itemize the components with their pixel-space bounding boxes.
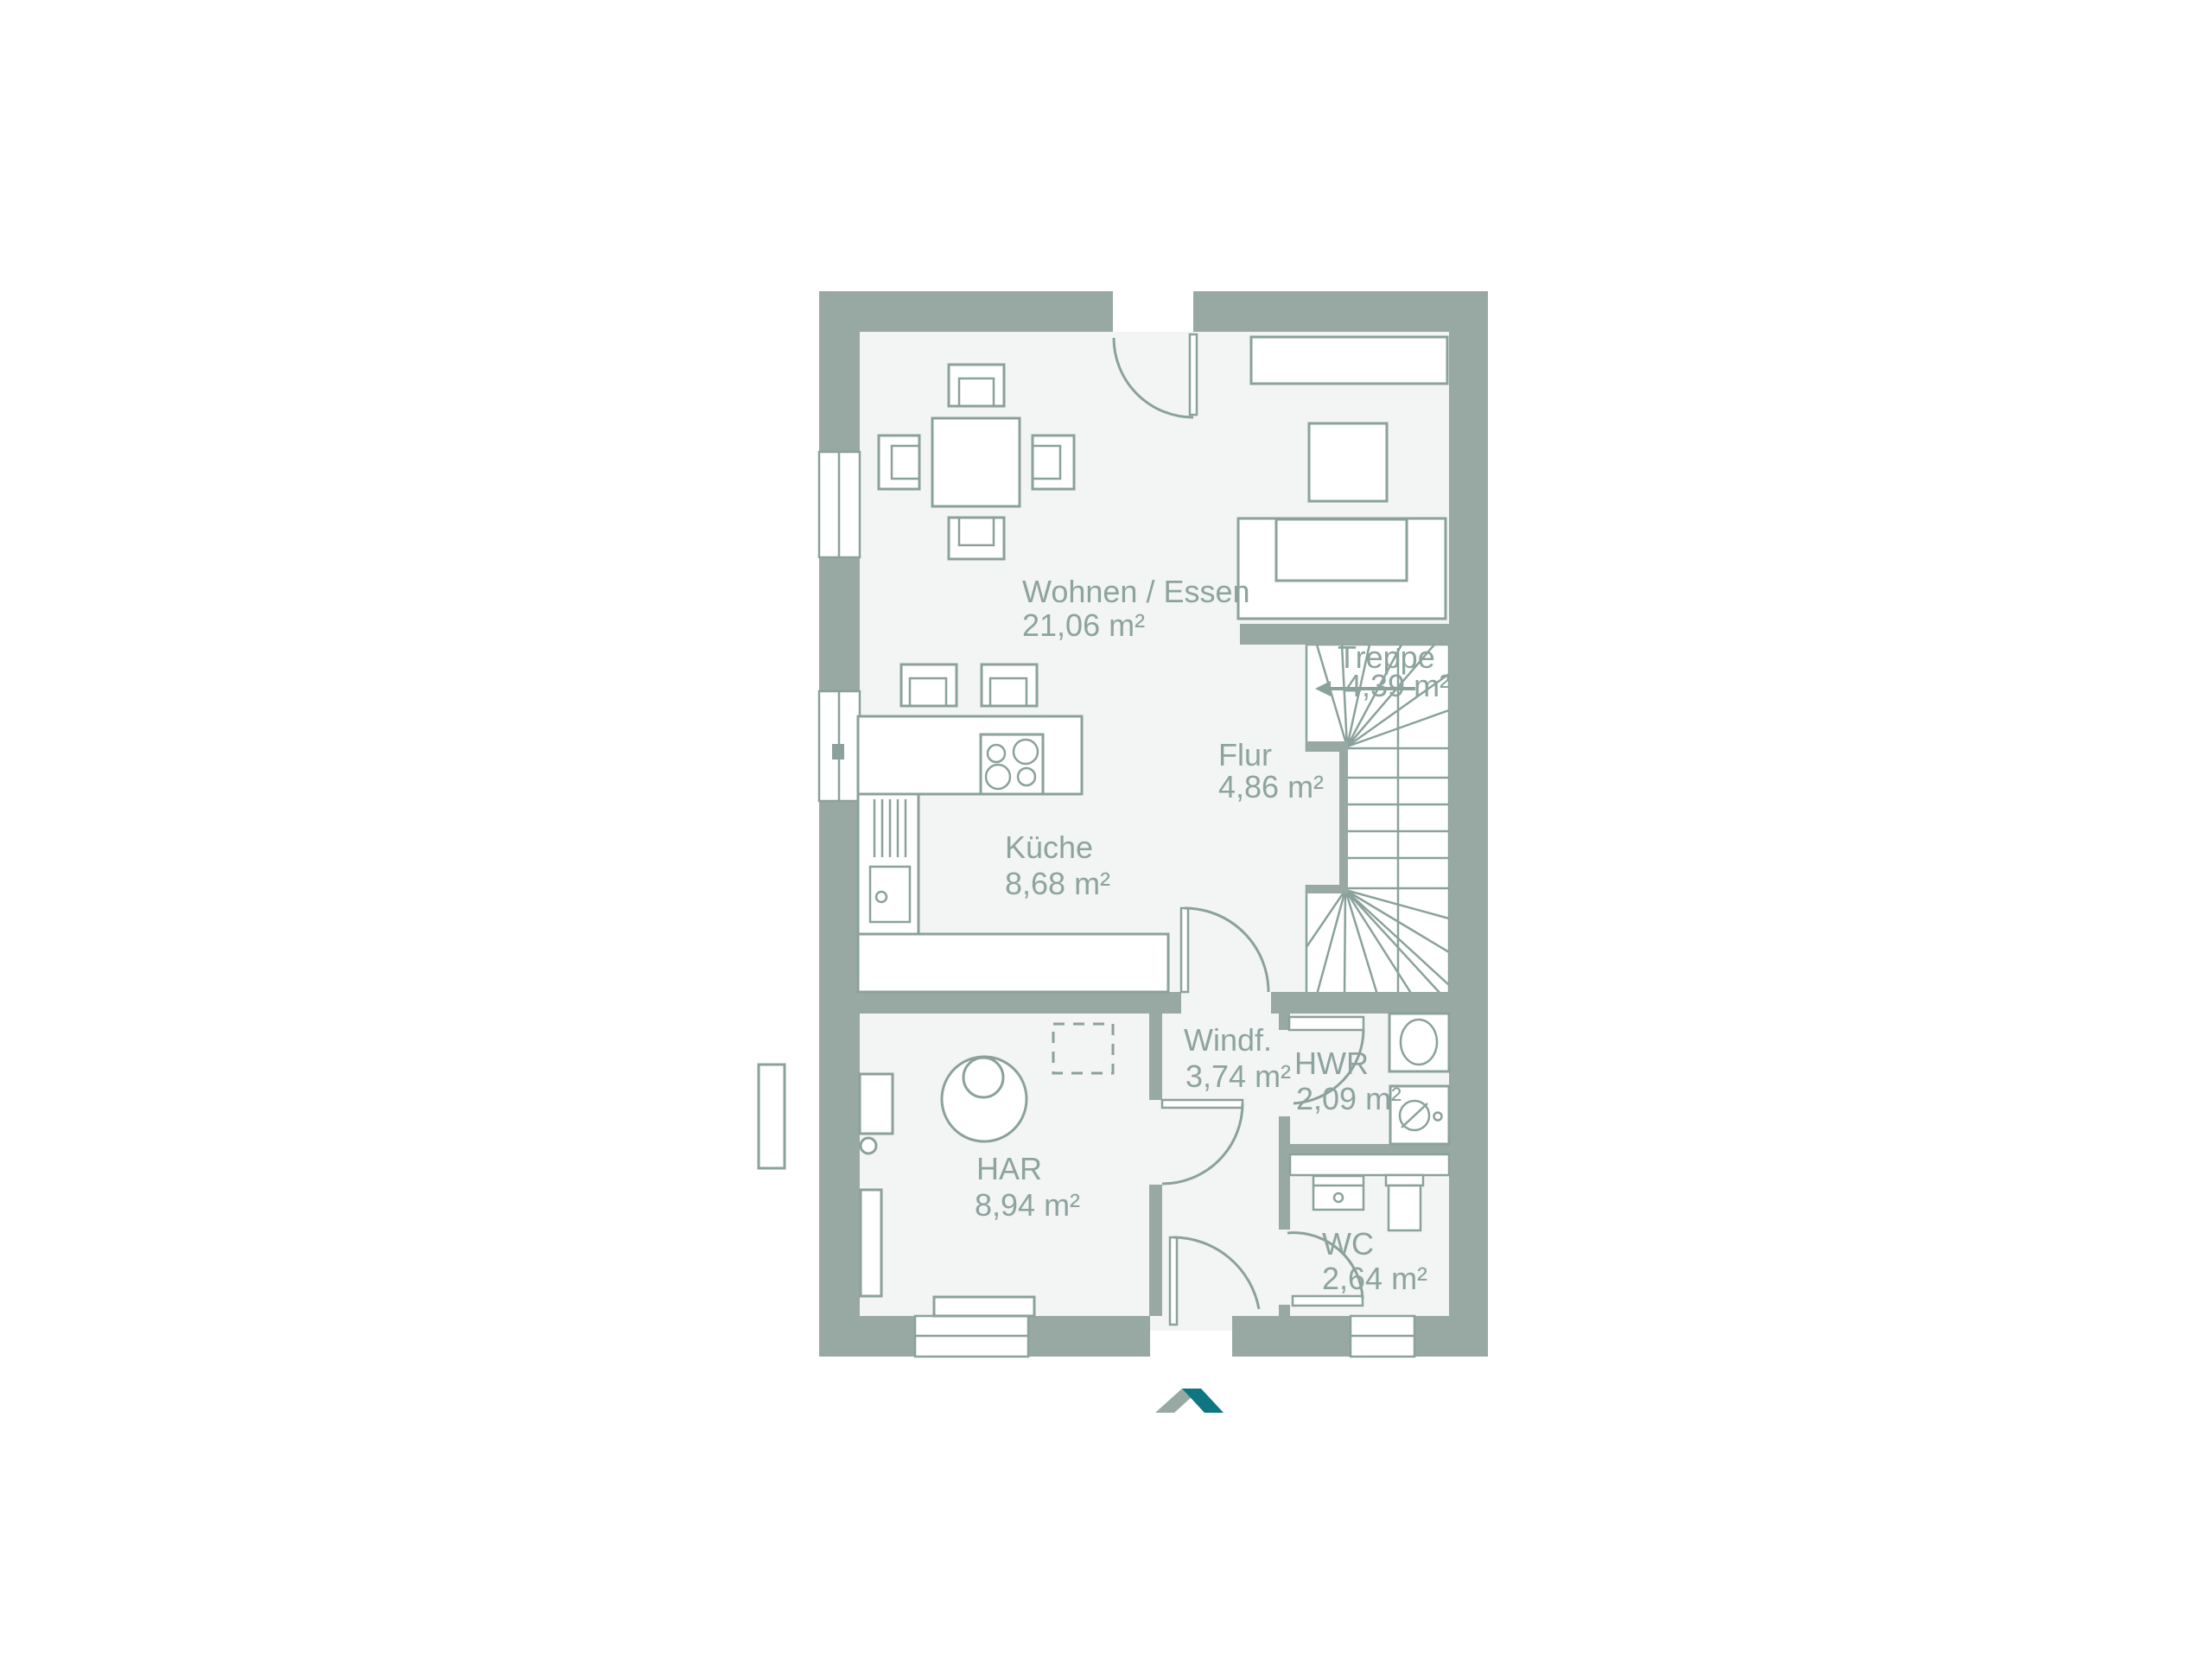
room-area-windfang: 3,74 m²: [1185, 1058, 1291, 1094]
bar-stool: [982, 664, 1037, 706]
room-label-wc: WC: [1322, 1226, 1374, 1262]
armchair: [1309, 423, 1387, 501]
roof-logo: [1155, 1389, 1224, 1413]
floor-plan: Wohnen / Essen 21,06 m² Küche 8,68 m² Fl…: [0, 0, 2212, 1659]
exterior-element: [759, 1065, 785, 1168]
wall-windfang-wc: [1279, 1116, 1290, 1230]
wall-hwr-wc: [1290, 1144, 1449, 1154]
washbasin-icon: [1313, 1176, 1363, 1210]
wall-har-windfang-upper: [1149, 1014, 1162, 1100]
bar-stool: [901, 664, 957, 706]
room-area-wohnen-essen: 21,06 m²: [1022, 607, 1145, 643]
chair: [879, 435, 919, 489]
entrance-opening: [1150, 1316, 1232, 1363]
wall-wc-stub: [1279, 1305, 1290, 1316]
window-kitchen: [819, 691, 860, 801]
room-label-windfang: Windf.: [1184, 1022, 1272, 1058]
stair-spine: [1339, 752, 1348, 885]
room-area-wc: 2,64 m²: [1322, 1261, 1427, 1296]
terrace-door-opening: [1113, 291, 1193, 332]
wc-shelf: [1290, 1154, 1449, 1175]
room-area-hwr: 2,09 m²: [1296, 1081, 1402, 1116]
wall-mid-left: [860, 992, 1181, 1014]
toilet-icon: [1386, 1175, 1423, 1230]
har-sideboard: [934, 1297, 1034, 1316]
kitchen-counter-bottom: [858, 934, 1168, 992]
sofa: [1238, 518, 1446, 619]
room-label-kueche: Küche: [1005, 829, 1093, 865]
kitchen-island: [858, 716, 1082, 794]
door-leaf: [1162, 1100, 1243, 1108]
chair: [949, 518, 1004, 559]
wall-mid-right: [1271, 992, 1449, 1014]
door-leaf: [1181, 908, 1188, 992]
room-area-kueche: 8,68 m²: [1005, 866, 1110, 901]
dining-table: [932, 418, 1020, 506]
door-leaf: [1289, 1017, 1363, 1030]
wardrobe: [861, 1190, 881, 1296]
washbasin-unit: [1389, 1014, 1449, 1071]
stair-spine-bottom: [1306, 885, 1348, 893]
chair: [1033, 435, 1074, 489]
entrance-threshold: [1150, 1331, 1232, 1363]
room-label-wohnen-essen: Wohnen / Essen: [1022, 574, 1250, 609]
appliance: [860, 1074, 893, 1134]
water-tank-icon: [942, 1057, 1027, 1141]
chair: [949, 365, 1004, 406]
room-area-treppe: 4,39 m²: [1344, 668, 1450, 703]
window-handle-icon: [832, 744, 844, 760]
door-leaf: [1190, 334, 1197, 415]
door-leaf: [1170, 1237, 1177, 1325]
room-label-flur: Flur: [1218, 737, 1272, 772]
cooktop-icon: [981, 734, 1043, 794]
window-wc: [1351, 1316, 1414, 1357]
sideboard: [1251, 337, 1447, 384]
window-har: [915, 1316, 1028, 1357]
drain-icon: [861, 1138, 876, 1154]
room-label-hwr: HWR: [1294, 1046, 1369, 1081]
floor-plan-page: Wohnen / Essen 21,06 m² Küche 8,68 m² Fl…: [0, 0, 2212, 1659]
door-leaf: [1293, 1296, 1363, 1306]
wall-right: [1449, 291, 1488, 1357]
room-area-flur: 4,86 m²: [1218, 769, 1324, 804]
window-living: [819, 452, 860, 557]
room-area-har: 8,94 m²: [975, 1187, 1080, 1223]
wall-har-windfang-lower: [1149, 1185, 1162, 1316]
room-label-har: HAR: [976, 1151, 1042, 1186]
stair-spine-top: [1306, 741, 1348, 752]
